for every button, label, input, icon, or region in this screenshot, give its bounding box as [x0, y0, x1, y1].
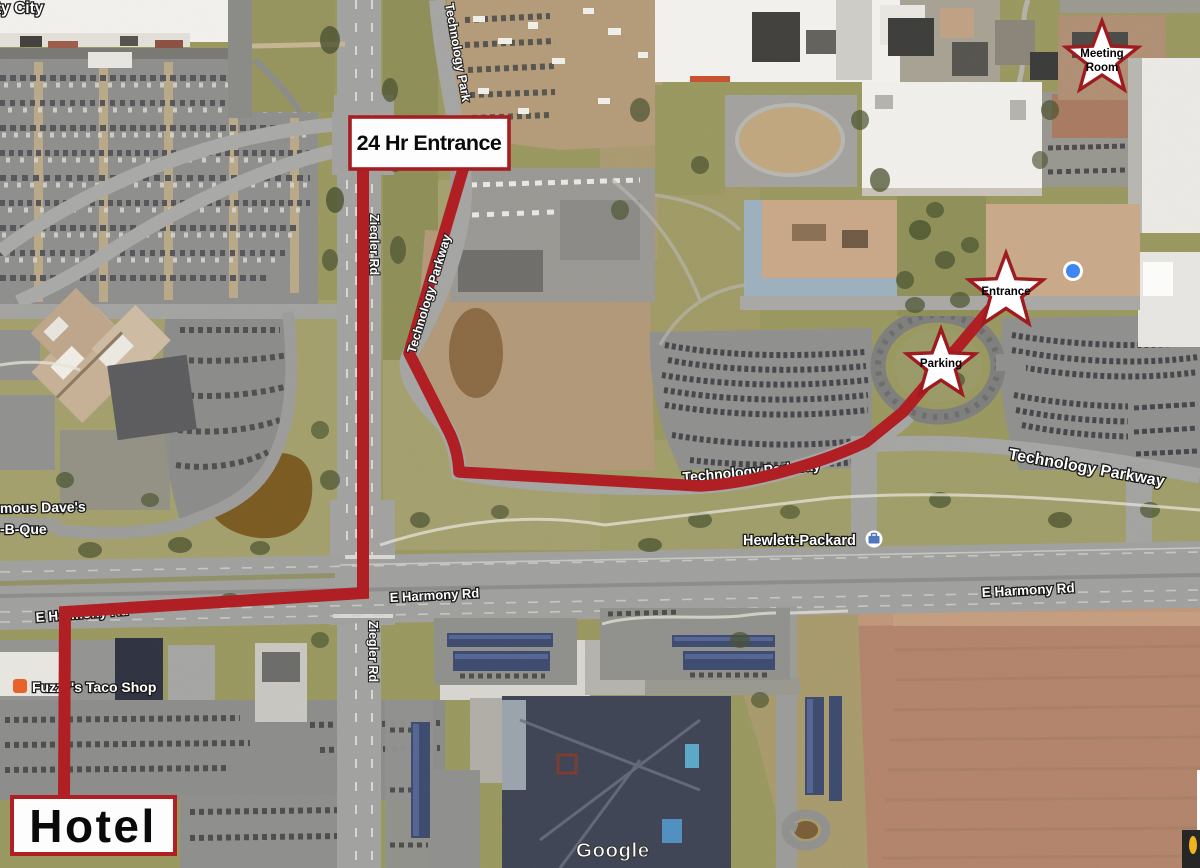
svg-text:Parking: Parking	[920, 358, 962, 370]
svg-text:ty City: ty City	[0, 0, 44, 17]
svg-text:Meeting: Meeting	[1080, 48, 1123, 60]
svg-text:Ziegler Rd: Ziegler Rd	[367, 214, 381, 275]
svg-text:Room: Room	[1086, 62, 1119, 74]
svg-text:Entrance: Entrance	[981, 286, 1030, 298]
svg-text:Hewlett-Packard: Hewlett-Packard	[743, 533, 856, 549]
svg-text:Hotel: Hotel	[29, 800, 157, 852]
svg-text:Fuzzy's Taco Shop: Fuzzy's Taco Shop	[32, 679, 156, 695]
svg-text:Ziegler Rd: Ziegler Rd	[366, 621, 380, 682]
svg-text:24 Hr Entrance: 24 Hr Entrance	[357, 131, 502, 155]
svg-text:Google: Google	[576, 839, 650, 862]
svg-text:mous Dave's: mous Dave's	[0, 499, 86, 516]
svg-text:-B-Que: -B-Que	[0, 521, 47, 537]
